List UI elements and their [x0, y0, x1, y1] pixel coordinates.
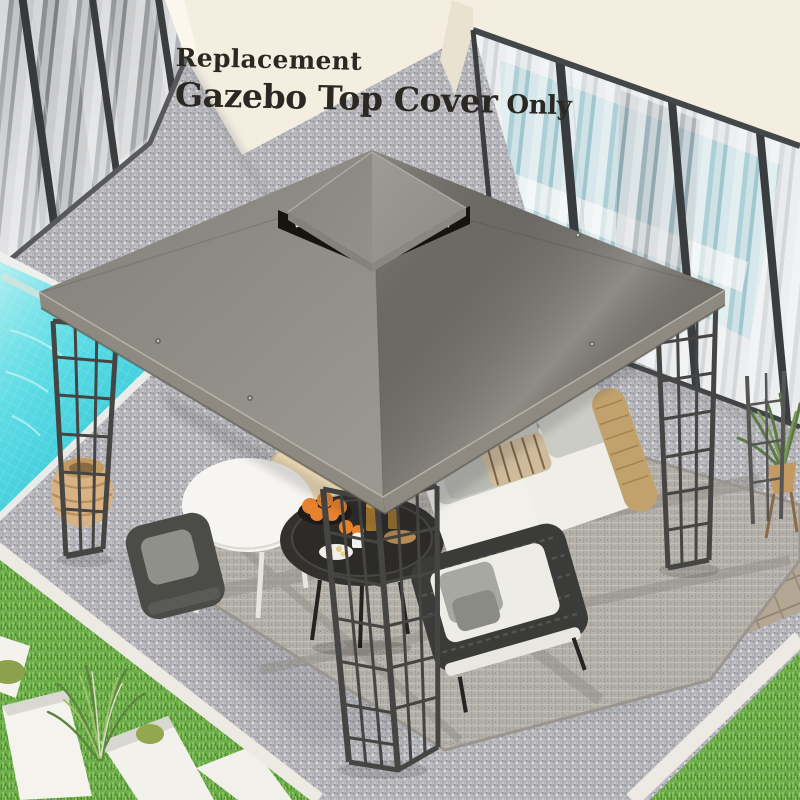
patio-scene — [0, 0, 800, 800]
product-photo: Replacement Gazebo Top CoverOnly — [0, 0, 800, 800]
headline-line2: Gazebo Top CoverOnly — [175, 76, 572, 121]
headline-suffix: Only — [497, 89, 572, 121]
headline-banner: Replacement Gazebo Top CoverOnly — [175, 44, 573, 121]
headline-main: Gazebo Top Cover — [175, 74, 498, 120]
shrub — [136, 724, 164, 744]
